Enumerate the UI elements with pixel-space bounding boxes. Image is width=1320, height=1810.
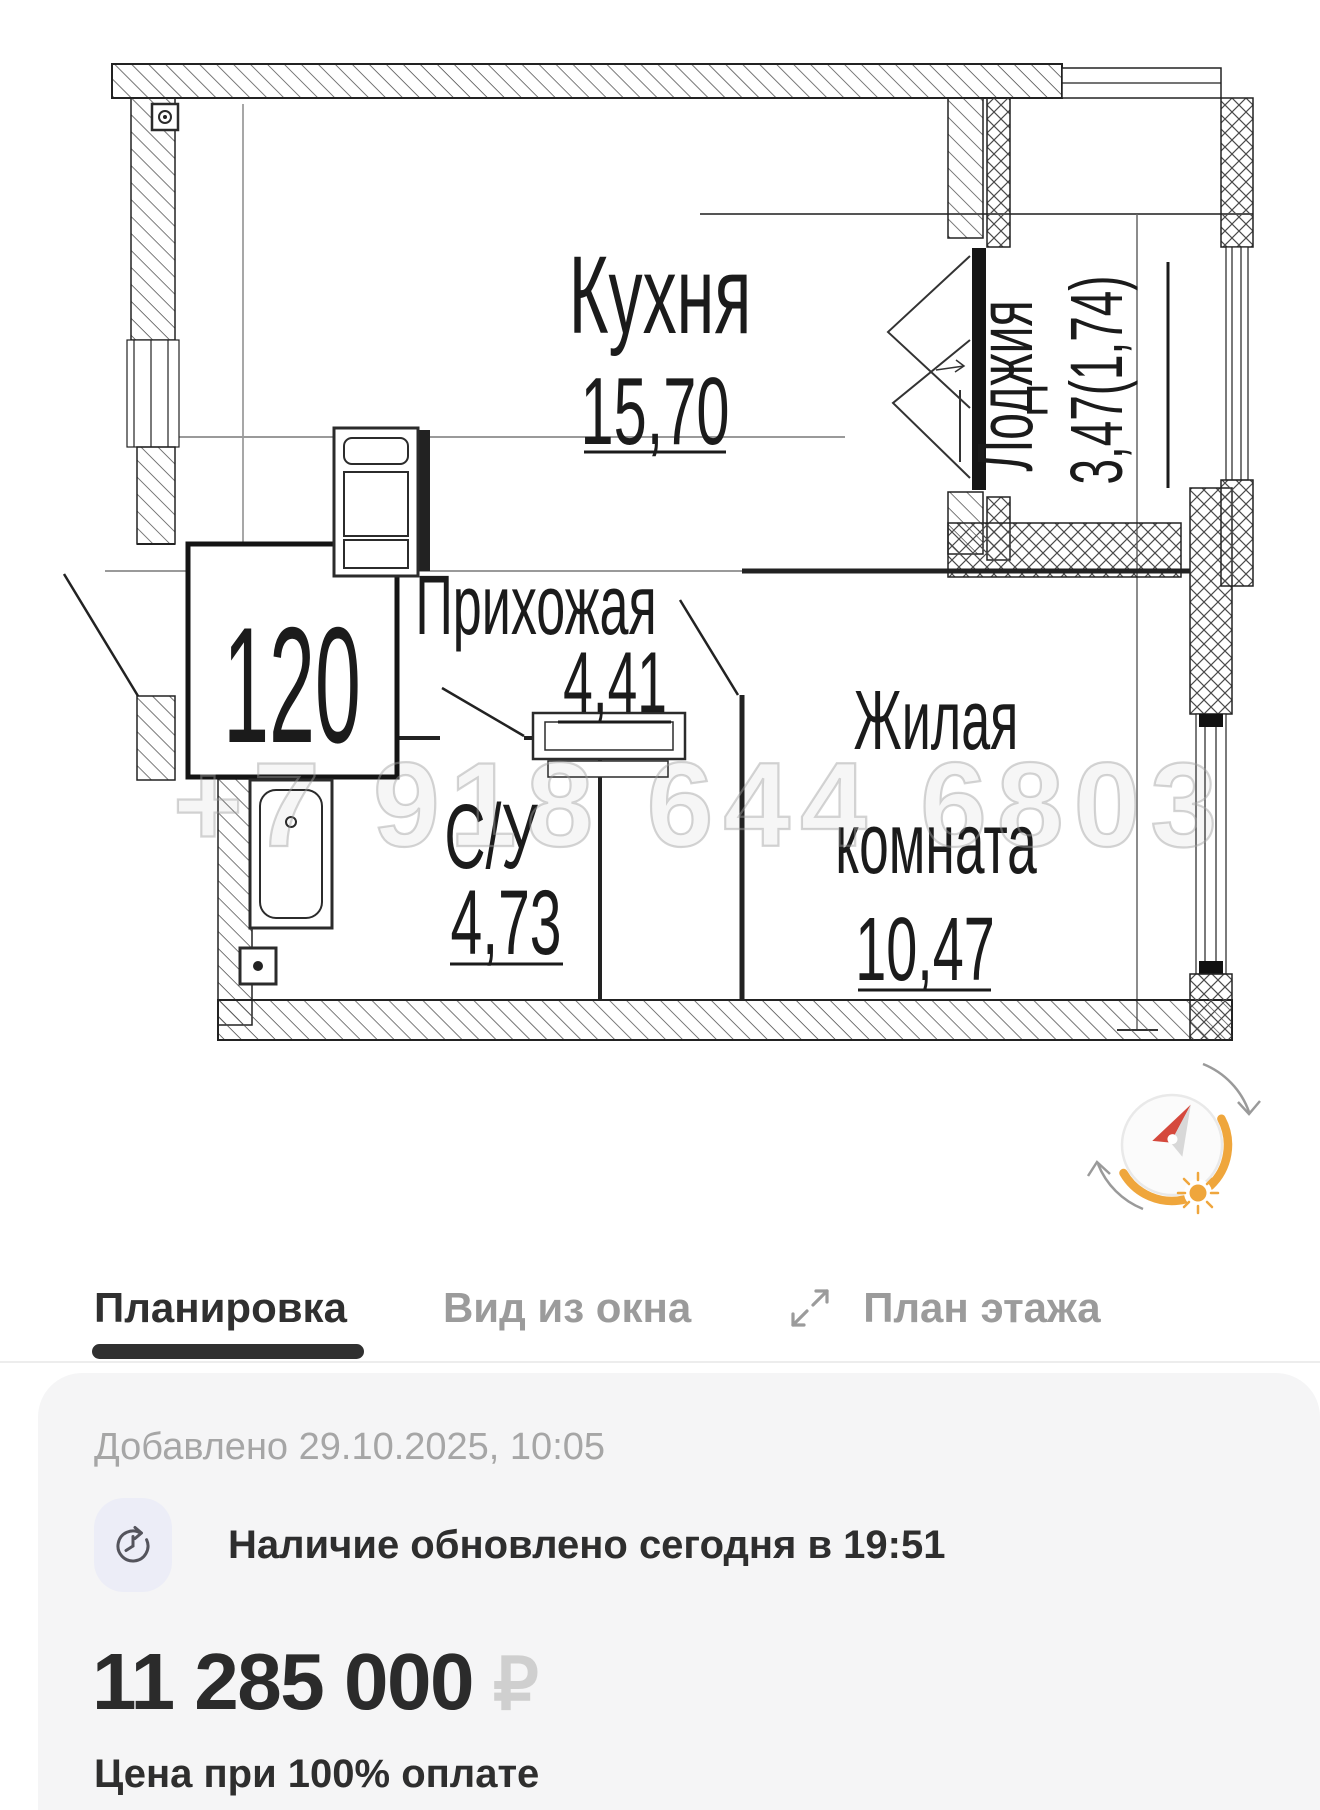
price-row: 11 285 000 ₽ (92, 1636, 539, 1728)
tab-layout[interactable]: Планировка (94, 1284, 347, 1332)
floorplan-viewer[interactable]: 120 (0, 0, 1320, 1240)
floorplan-image: 120 (0, 0, 1320, 1240)
sun-icon (1178, 1173, 1218, 1213)
price-note: Цена при 100% оплате (94, 1752, 539, 1797)
hallway-area: 4,41 (563, 635, 667, 731)
room-labels: Кухня 15,70 Лоджия 3,47(1,74) Прихожая 4… (415, 234, 1168, 999)
tabs-divider (0, 1361, 1320, 1363)
loggia-label: Лоджия (961, 300, 1049, 471)
watermark-phone: +7 918 644 6803 (173, 738, 1227, 872)
left-window (127, 340, 179, 447)
bathroom-area: 4,73 (450, 872, 561, 974)
ruble-sign: ₽ (493, 1642, 539, 1726)
added-date: Добавлено 29.10.2025, 10:05 (94, 1426, 605, 1469)
tab-window-view-label: Вид из окна (443, 1284, 691, 1331)
listing-screen: 120 (0, 0, 1320, 1810)
clock-refresh-icon (110, 1522, 156, 1568)
appliance-block (334, 428, 418, 576)
active-tab-underline (92, 1344, 364, 1359)
compass-icon (1088, 1064, 1260, 1213)
availability-row: Наличие обновлено сегодня в 19:51 (94, 1498, 945, 1592)
kitchen-area: 15,70 (581, 357, 730, 464)
living-area: 10,47 (855, 898, 995, 999)
loggia-glazing (1226, 247, 1248, 480)
tab-layout-label: Планировка (94, 1284, 347, 1331)
vent-shaft (152, 104, 178, 130)
kitchen-label: Кухня (569, 234, 751, 357)
entrance-door-leaf (64, 574, 138, 696)
tab-window-view[interactable]: Вид из окна (443, 1284, 691, 1332)
media-tabs: Планировка Вид из окна План этажа (0, 1272, 1320, 1344)
tab-floor-plan-label: План этажа (863, 1284, 1100, 1332)
right-wall (1190, 98, 1253, 1040)
tab-floor-plan[interactable]: План этажа (787, 1284, 1100, 1332)
availability-badge (94, 1498, 172, 1592)
expand-icon (787, 1285, 833, 1331)
loggia-area: 3,47(1,74) (1056, 275, 1139, 484)
availability-text: Наличие обновлено сегодня в 19:51 (228, 1523, 945, 1568)
price-value: 11 285 000 (92, 1636, 473, 1728)
floor-drain (240, 948, 276, 984)
